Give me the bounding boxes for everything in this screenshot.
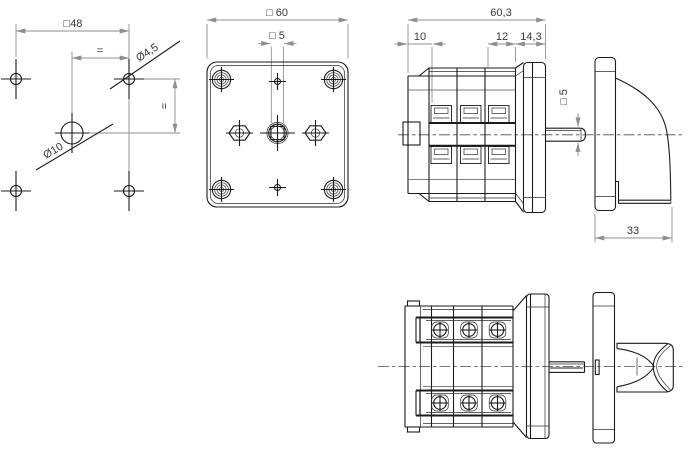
dim-equal-h-label: =: [97, 45, 103, 57]
dim-143-label: 14,3: [520, 31, 541, 43]
shaft-top: [549, 360, 599, 375]
terminal-screw: [432, 322, 449, 338]
terminal-screw: [461, 322, 478, 338]
dim-square5-front-label: □ 5: [269, 30, 285, 42]
side-view: 60,3 10 12 14,3: [394, 7, 684, 243]
mounting-hole-top-right: [114, 59, 144, 99]
mounting-hole-bottom-right: [114, 171, 144, 211]
dim-33-label: 33: [627, 225, 639, 237]
cam-switch-dimensional-drawing: □48 = = Ø4,5 Ø10 □ 60: [0, 0, 688, 453]
handle-plate-top: [593, 293, 615, 444]
mounting-hole-bottom-left: [1, 171, 31, 211]
drilling-plan-view: □48 = = Ø4,5 Ø10: [1, 18, 180, 211]
dim-equal-v-label: =: [159, 103, 171, 109]
hex-nut-left: [226, 120, 253, 146]
switch-body-side: [403, 68, 516, 202]
dim-square5-side-label: □ 5: [558, 89, 570, 105]
front-view: □ 60 □ 5: [207, 7, 348, 207]
mounting-hole-top-left: [1, 59, 31, 99]
dim-square48-label: □48: [64, 18, 83, 30]
dim-10-label: 10: [414, 31, 426, 43]
dim-square60-label: □ 60: [266, 7, 288, 19]
hex-nut-right: [302, 120, 329, 146]
corner-screw: [321, 177, 346, 202]
dim-603-label: 60,3: [490, 7, 511, 19]
front-plate-side: [516, 63, 546, 213]
terminal-screw: [489, 322, 506, 338]
dim-dia10-label: Ø10: [41, 141, 65, 162]
corner-screw: [209, 67, 234, 92]
dim-dia45-label: Ø4,5: [134, 41, 161, 64]
terminal-screw: [432, 395, 449, 411]
terminal-strip-bottom-row: [416, 391, 513, 416]
corner-screw: [321, 67, 346, 92]
handle-knob-top: [617, 343, 673, 392]
technical-drawing-page: □48 = = Ø4,5 Ø10 □ 60: [0, 0, 688, 453]
pilot-hole-bottom: [269, 179, 286, 196]
top-view: [378, 293, 684, 444]
dim-12-label: 12: [496, 31, 508, 43]
corner-screw: [209, 177, 234, 202]
terminal-screw: [489, 395, 506, 411]
handle-profile-side: [595, 58, 671, 211]
terminal-strip-top-row: [416, 318, 513, 343]
center-shaft-square: [260, 115, 295, 151]
terminal-screw: [461, 395, 478, 411]
side-notch: [403, 122, 420, 145]
